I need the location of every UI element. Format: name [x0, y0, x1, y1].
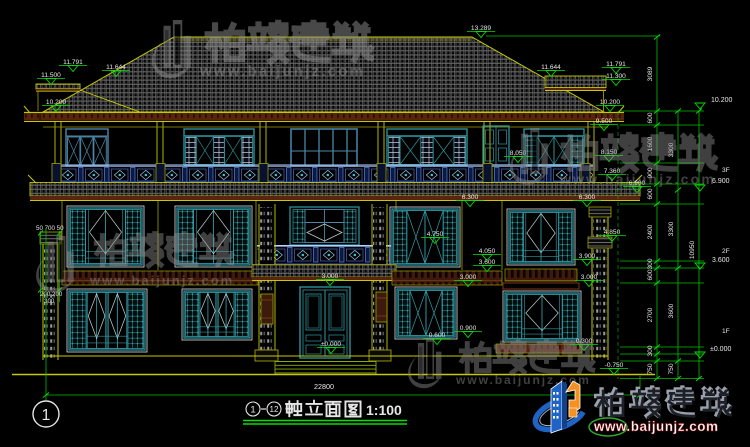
svg-text:1: 1 [250, 405, 255, 416]
svg-text:3.000: 3.000 [322, 273, 339, 280]
svg-text:3.000: 3.000 [581, 274, 598, 281]
svg-text:3600: 3600 [668, 303, 675, 318]
svg-text:11.500: 11.500 [41, 72, 61, 79]
svg-text:0.600: 0.600 [429, 332, 446, 339]
svg-text:1:100: 1:100 [366, 402, 402, 418]
svg-text:13.289: 13.289 [471, 25, 492, 32]
svg-text:600: 600 [647, 269, 654, 280]
svg-text:6.300: 6.300 [579, 194, 596, 201]
svg-text:±0.000: ±0.000 [321, 341, 341, 348]
svg-text:3089: 3089 [647, 66, 654, 81]
svg-text:11.644: 11.644 [106, 64, 126, 71]
svg-text:600: 600 [647, 112, 654, 123]
svg-text:4.750: 4.750 [427, 231, 444, 238]
svg-text:10.200: 10.200 [600, 99, 621, 106]
svg-text:www.baijunjz.com: www.baijunjz.com [199, 64, 365, 80]
svg-text:3.600: 3.600 [479, 259, 496, 266]
svg-text:11.300: 11.300 [606, 73, 626, 80]
svg-text:10950: 10950 [689, 241, 696, 260]
svg-text:1F: 1F [722, 328, 730, 335]
svg-text:22800: 22800 [314, 382, 334, 391]
svg-text:www.baijunjz.com: www.baijunjz.com [559, 171, 716, 187]
svg-text:50 700 50: 50 700 50 [36, 225, 64, 232]
svg-text:www.baijunjz.com: www.baijunjz.com [89, 273, 234, 288]
svg-text:300: 300 [647, 258, 654, 269]
svg-text:-0.750: -0.750 [605, 362, 624, 369]
svg-text:6.300: 6.300 [462, 194, 479, 201]
svg-text:10.200: 10.200 [711, 97, 733, 104]
svg-text:3.900: 3.900 [579, 253, 596, 260]
svg-text:0.900: 0.900 [460, 325, 477, 332]
svg-text:1: 1 [42, 407, 51, 424]
svg-text:750: 750 [647, 363, 654, 374]
svg-text:3F: 3F [722, 167, 730, 174]
svg-text:2F: 2F [722, 248, 730, 255]
svg-text:11.791: 11.791 [606, 61, 626, 68]
svg-text:10.200: 10.200 [46, 99, 67, 106]
svg-text:4.050: 4.050 [479, 248, 496, 255]
svg-text:3300: 3300 [668, 221, 675, 236]
svg-text:±0.000: ±0.000 [710, 346, 731, 353]
svg-text:www.baijunjz.com: www.baijunjz.com [593, 419, 719, 434]
svg-text:300: 300 [647, 345, 654, 356]
svg-text:11.791: 11.791 [63, 59, 83, 66]
svg-text:3.000: 3.000 [460, 274, 477, 281]
svg-text:12: 12 [270, 405, 279, 414]
svg-text:11.644: 11.644 [541, 64, 561, 71]
svg-text:600: 600 [647, 188, 654, 199]
svg-text:2700: 2700 [647, 307, 654, 322]
svg-text:9.500: 9.500 [596, 118, 613, 125]
svg-text:750: 750 [668, 363, 675, 374]
svg-text:2400: 2400 [647, 224, 654, 239]
svg-text:3.600: 3.600 [712, 257, 730, 264]
